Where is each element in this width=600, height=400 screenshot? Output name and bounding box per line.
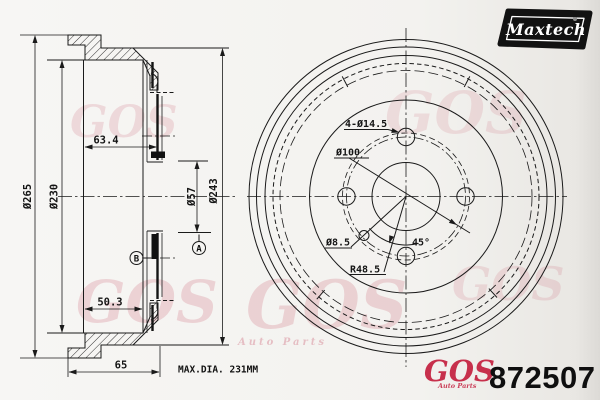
label-bolt-circle-text: Ø100 [335,147,360,159]
dim-outer-diameter-label: Ø265 [22,184,34,210]
technical-drawing-page: GOS GOS GOS GOS GOS Auto Parts [0,0,600,400]
dim-bore-diameter-label: Ø57 [186,187,198,207]
part-number: 872507 [489,360,595,395]
brand-logo-text: Maxtech [505,20,586,39]
note-max-dia: MAX.DIA. 231MM [178,365,258,376]
footer: GOS Auto Parts 872507 [424,354,595,395]
dim-inner-depth-label: 50.3 [97,297,122,309]
datum-a-label: A [196,245,202,255]
dim-flange-diameter-label: Ø243 [208,178,220,204]
dim-hub-depth-label: 63.4 [93,135,118,147]
label-radius-text: R48.5 [350,265,380,276]
watermark-text: GOS [70,97,178,148]
stud-section [151,152,165,159]
datum-b-label: B [134,255,140,265]
brand-logo: Maxtech [500,11,590,47]
dim-overall-depth-label: 65 [115,360,128,372]
stud-section [152,234,159,259]
dim-inner-diameter-label: Ø230 [49,184,61,210]
brake-drum-drawing: GOS GOS GOS GOS GOS Auto Parts [0,0,600,400]
watermark-caption: Auto Parts [237,337,327,348]
vendor-caption: Auto Parts [437,382,477,390]
label-small-hole-text: Ø8.5 [325,237,350,249]
label-bolt-holes-text: 4-Ø14.5 [345,118,387,130]
label-angle-text: 45° [412,238,430,249]
